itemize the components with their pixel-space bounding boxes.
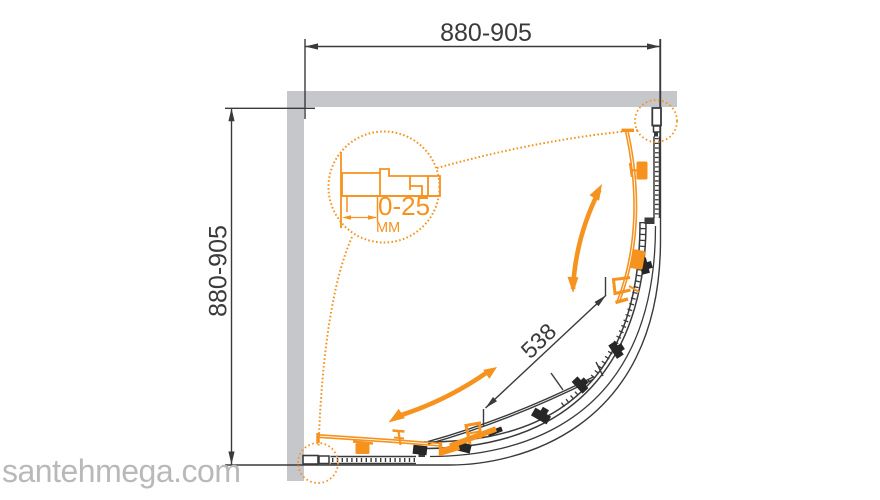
svg-text:0-25: 0-25: [378, 191, 430, 221]
svg-text:880-905: 880-905: [205, 225, 233, 317]
svg-text:MM: MM: [376, 220, 400, 236]
svg-text:880-905: 880-905: [440, 19, 532, 47]
svg-text:santehmega.com: santehmega.com: [2, 453, 240, 489]
